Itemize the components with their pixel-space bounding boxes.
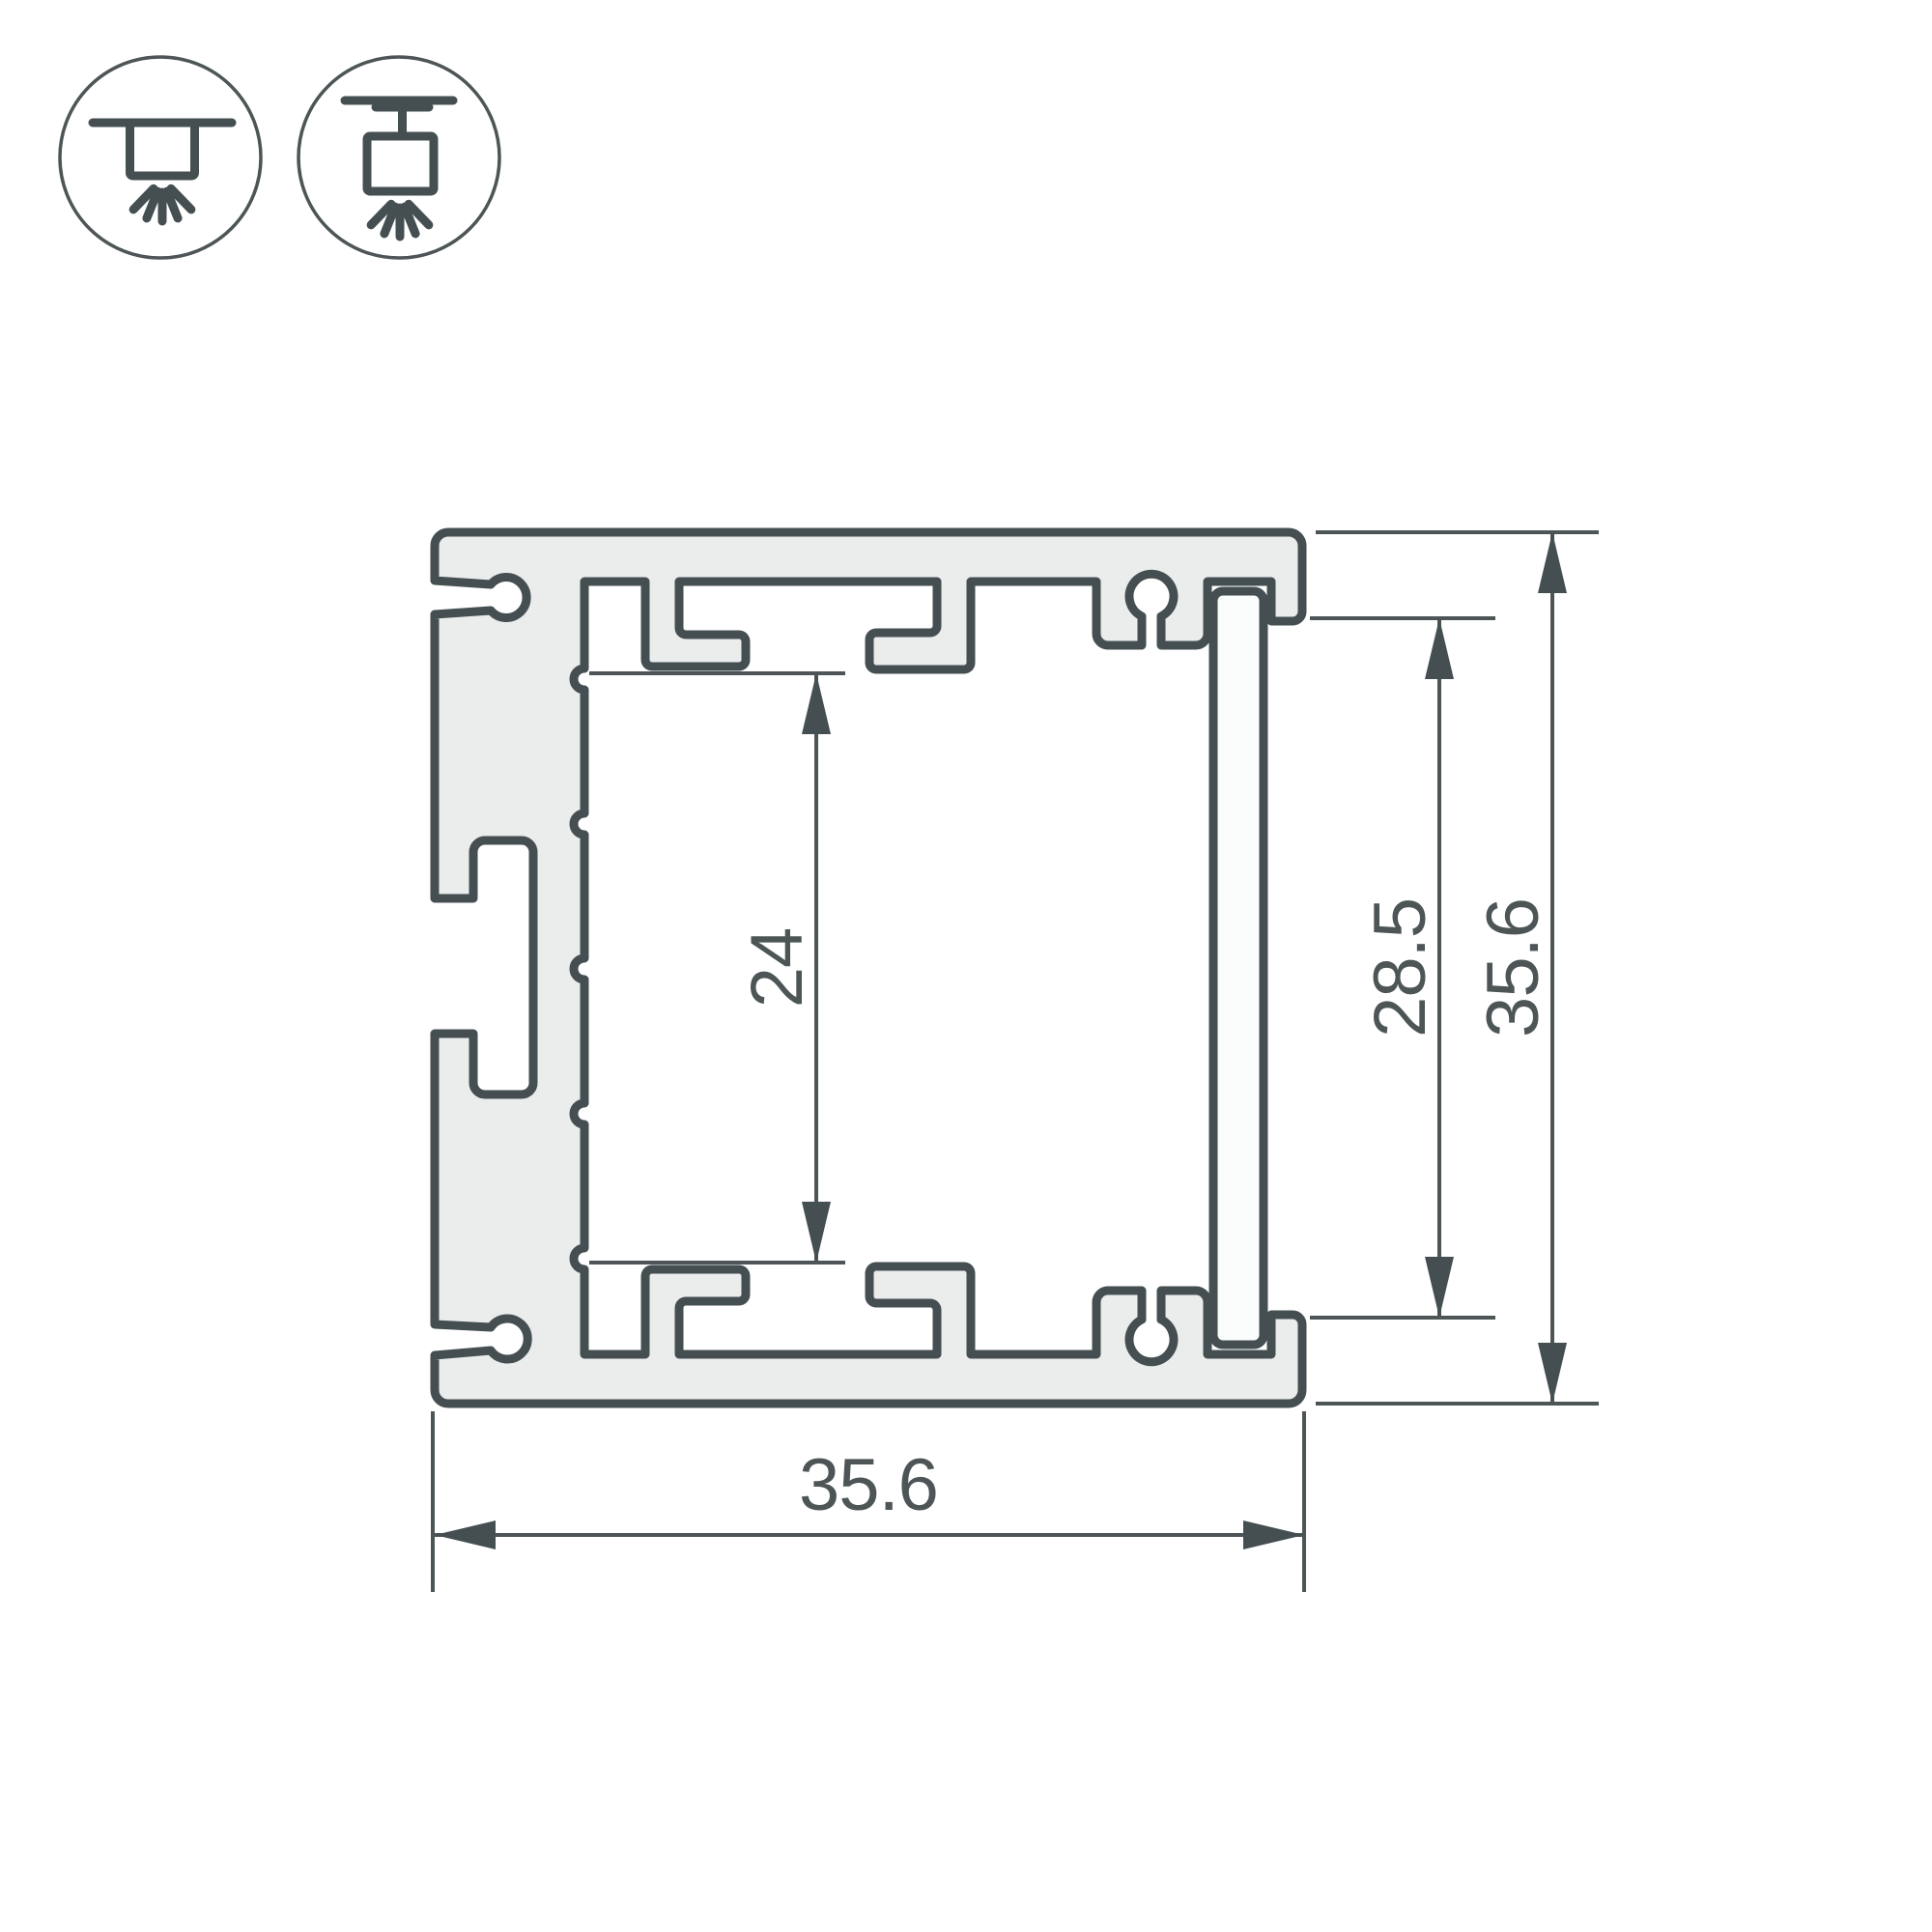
dimension-label-cavity-height: 24 [736, 928, 818, 1009]
mount-icons [60, 57, 499, 258]
arrowhead-up [802, 673, 831, 734]
dimension-label-overall-width: 35.6 [799, 1444, 938, 1526]
diffuser-plate [1213, 591, 1264, 1345]
dimensions: 24 28.5 35.6 35.6 [433, 532, 1599, 1592]
dimension-overall-width: 35.6 [433, 1411, 1304, 1592]
surface-mount-icon [60, 57, 261, 258]
arrowhead-up [1538, 532, 1567, 593]
pendant-mount-icon [298, 57, 499, 258]
dimension-cavity-height: 24 [589, 673, 845, 1263]
arrowhead-down [802, 1202, 831, 1263]
profile-box [367, 136, 434, 191]
technical-drawing: 24 28.5 35.6 35.6 [0, 0, 1932, 1932]
arrowhead-up [1425, 618, 1454, 679]
light-rays [133, 188, 191, 221]
arrowhead-right [1243, 1520, 1304, 1549]
light-rays [371, 204, 429, 237]
drawing-page: 24 28.5 35.6 35.6 [0, 0, 1932, 1932]
arrowhead-down [1538, 1343, 1567, 1404]
dimension-window-height: 28.5 [1310, 618, 1495, 1318]
arrowhead-left [435, 1520, 496, 1549]
dimension-label-window-height: 28.5 [1359, 898, 1441, 1037]
surface-mount-icon-circle [60, 57, 261, 258]
arrowhead-down [1425, 1257, 1454, 1318]
profile-cross-section [435, 532, 1302, 1404]
profile-box [130, 123, 195, 176]
dimension-label-overall-height: 35.6 [1472, 898, 1554, 1037]
dimension-overall-height: 35.6 [1316, 532, 1599, 1404]
